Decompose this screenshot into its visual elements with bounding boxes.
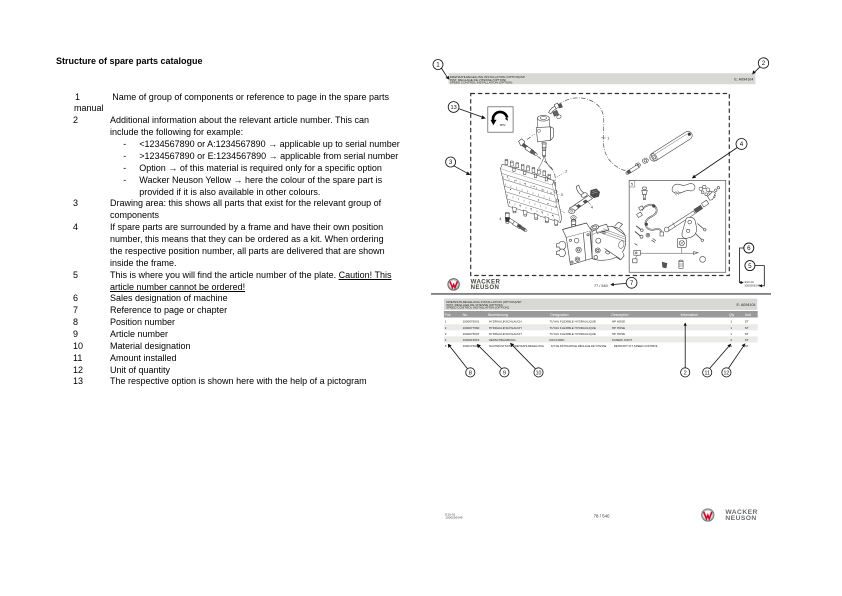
svg-text:5: 5 (445, 344, 447, 348)
svg-text:1: 1 (730, 332, 732, 336)
svg-text:HP HOSE: HP HOSE (612, 326, 625, 330)
svg-text:SPEED CONTROL INSTALLATION (OP: SPEED CONTROL INSTALLATION (OPTION) (450, 81, 513, 85)
svg-text:RPM: RPM (500, 124, 506, 127)
svg-text:SPEED CONTROL INSTALLATION (OP: SPEED CONTROL INSTALLATION (OPTION) (446, 306, 509, 310)
svg-text:7: 7 (630, 280, 634, 287)
svg-text:TUYAU FLEXIBLE HYDRAULIQUE: TUYAU FLEXIBLE HYDRAULIQUE (550, 320, 596, 324)
svg-text:No.: No. (463, 313, 468, 317)
svg-text:HYDRAULIKSCHLAUCH: HYDRAULIKSCHLAUCH (489, 326, 522, 330)
svg-text:HP HOSE: HP HOSE (612, 332, 625, 336)
svg-text:1: 1 (445, 320, 447, 324)
svg-text:11: 11 (705, 370, 710, 376)
svg-text:3: 3 (561, 193, 563, 197)
svg-text:E: A094104: E: A094104 (734, 78, 753, 82)
svg-text:3: 3 (445, 332, 447, 336)
svg-text:1000266149: 1000266149 (744, 283, 760, 287)
svg-text:1000076007: 1000076007 (463, 332, 480, 336)
svg-text:4: 4 (591, 206, 593, 210)
svg-text:1: 1 (607, 137, 609, 141)
svg-text:5: 5 (748, 263, 752, 270)
svg-text:SCREW JOINT: SCREW JOINT (612, 338, 632, 342)
svg-text:Qty: Qty (729, 313, 735, 317)
svg-text:78 / 540: 78 / 540 (594, 514, 610, 519)
svg-text:Bezeichnung: Bezeichnung (488, 313, 508, 317)
svg-text:10: 10 (536, 370, 542, 376)
svg-text:NEUSON: NEUSON (725, 515, 756, 522)
svg-text:KIT DE RATTRAPAGE RÉGLAGE DE V: KIT DE RATTRAPAGE RÉGLAGE DE VITESSE (551, 343, 607, 348)
svg-text:1000077960: 1000077960 (463, 326, 480, 330)
svg-text:12: 12 (724, 370, 730, 376)
svg-text:3: 3 (449, 159, 453, 166)
svg-text:6: 6 (747, 245, 751, 252)
svg-text:8: 8 (469, 370, 472, 376)
svg-text:Pos: Pos (445, 313, 451, 317)
svg-text:ST: ST (745, 326, 749, 330)
svg-text:1000076001: 1000076001 (463, 320, 480, 324)
svg-text:1: 1 (436, 62, 440, 69)
svg-text:Information: Information (681, 313, 698, 317)
svg-text:1: 1 (730, 320, 732, 324)
svg-text:NEUSON: NEUSON (471, 284, 500, 291)
svg-text:HP HOSE: HP HOSE (612, 320, 625, 324)
svg-text:4: 4 (499, 217, 501, 221)
svg-text:HYDRAULIKSCHLAUCH: HYDRAULIKSCHLAUCH (489, 320, 522, 324)
svg-text:77 / 540: 77 / 540 (594, 284, 608, 288)
svg-text:ST: ST (745, 320, 749, 324)
svg-text:TUYAU FLEXIBLE HYDRAULIQUE: TUYAU FLEXIBLE HYDRAULIQUE (550, 332, 596, 336)
svg-text:E: A094104: E: A094104 (737, 303, 756, 307)
svg-text:RACCORD: RACCORD (550, 338, 565, 342)
svg-text:1000266149: 1000266149 (445, 516, 462, 520)
svg-text:4: 4 (740, 141, 744, 148)
svg-text:2: 2 (762, 60, 766, 67)
svg-text:ST: ST (745, 338, 749, 342)
svg-text:2: 2 (684, 370, 687, 376)
svg-text:13: 13 (450, 105, 456, 111)
svg-text:RETROFIT KIT SPEED CONTROL: RETROFIT KIT SPEED CONTROL (614, 344, 659, 348)
svg-text:HYDRAULIKSCHLAUCH: HYDRAULIKSCHLAUCH (489, 332, 522, 336)
svg-text:1000016515: 1000016515 (463, 338, 480, 342)
svg-text:Désignation: Désignation (550, 313, 568, 317)
svg-text:TUYAU FLEXIBLE HYDRAULIQUE: TUYAU FLEXIBLE HYDRAULIQUE (550, 326, 596, 330)
svg-text:VERSCHRAUBUNG: VERSCHRAUBUNG (489, 338, 517, 342)
svg-text:ST: ST (745, 332, 749, 336)
svg-text:9: 9 (503, 370, 506, 376)
svg-text:Description: Description (611, 313, 628, 317)
svg-text:2: 2 (565, 170, 567, 174)
svg-text:Unit: Unit (745, 313, 751, 317)
svg-text:ST: ST (745, 344, 749, 348)
svg-text:NACHRÜSTSATZ DREHZAHLREGELUNG: NACHRÜSTSATZ DREHZAHLREGELUNG (489, 344, 544, 348)
